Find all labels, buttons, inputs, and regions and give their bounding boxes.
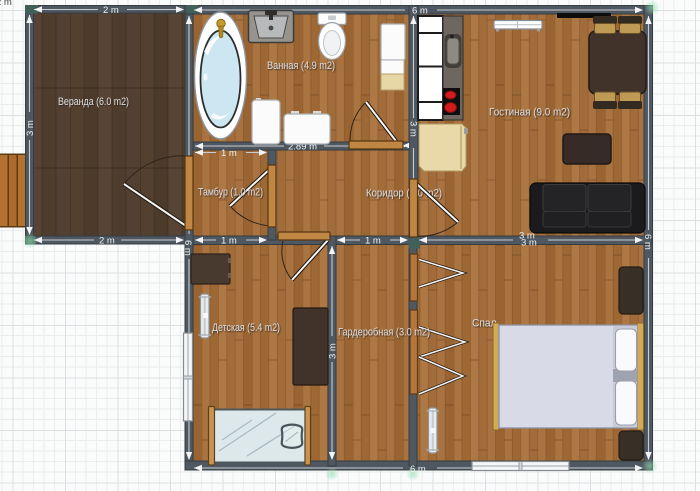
svg-text:6 m: 6 m: [642, 234, 653, 250]
svg-text:2 m: 2 m: [99, 236, 115, 247]
svg-text:1 m: 1 m: [365, 236, 381, 247]
svg-text:3 m: 3 m: [521, 238, 537, 249]
svg-text:Гардеробная (3.0 m2): Гардеробная (3.0 m2): [338, 327, 430, 339]
svg-text:Веранда (6.0 m2): Веранда (6.0 m2): [58, 96, 129, 108]
svg-text:1 m: 1 m: [221, 236, 237, 247]
svg-text:1 m: 1 m: [221, 148, 237, 159]
svg-text:Ванная (4.9 m2): Ванная (4.9 m2): [267, 60, 335, 72]
svg-text:3 m: 3 m: [408, 121, 419, 137]
svg-text:Детская (5.4 m2): Детская (5.4 m2): [212, 322, 280, 334]
svg-text:2 m: 2 m: [0, 0, 12, 8]
svg-text:6 m: 6 m: [410, 464, 426, 475]
svg-text:3 m: 3 m: [25, 120, 36, 136]
svg-text:6 m: 6 m: [412, 6, 428, 17]
svg-text:2 m: 2 m: [103, 5, 119, 16]
svg-text:Тамбур (1.0 m2): Тамбур (1.0 m2): [198, 187, 263, 199]
svg-text:3 m: 3 m: [328, 343, 339, 359]
svg-text:Гостиная (9.0 m2): Гостиная (9.0 m2): [489, 107, 570, 119]
svg-text:6 m: 6 m: [182, 240, 193, 256]
